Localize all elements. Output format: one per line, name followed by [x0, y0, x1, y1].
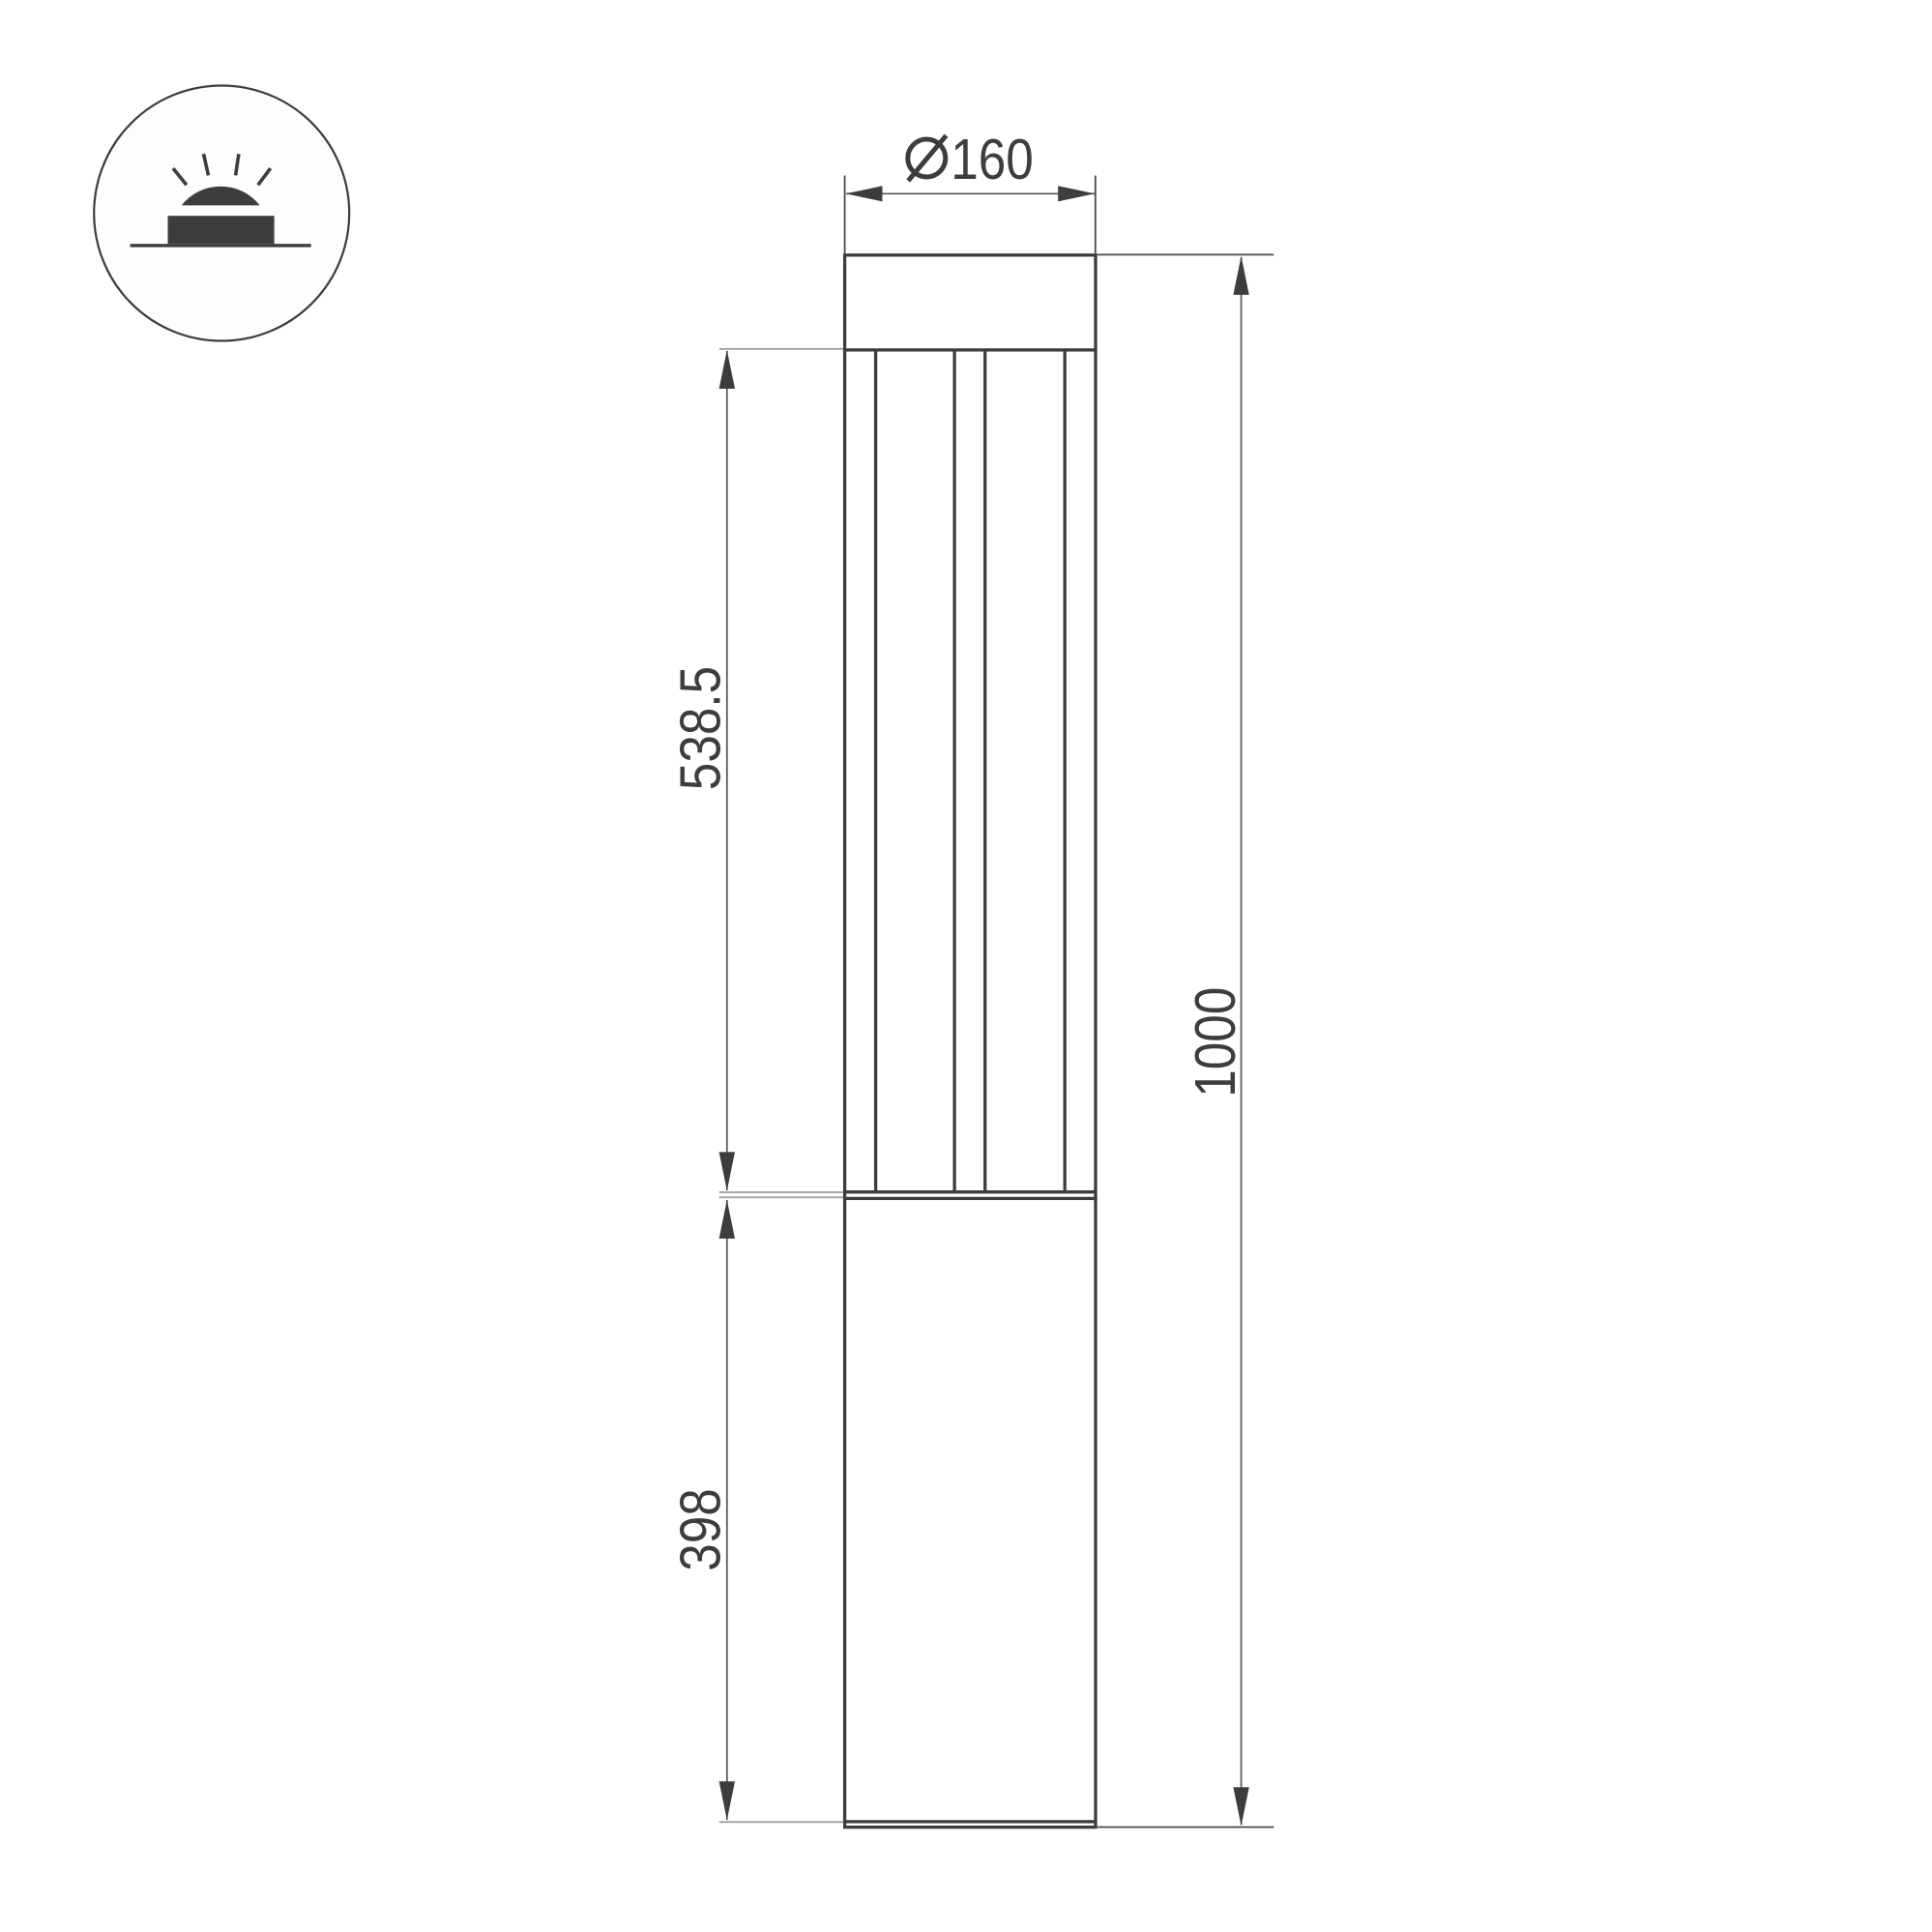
svg-text:538.5: 538.5 [668, 666, 732, 790]
svg-text:398: 398 [668, 1488, 732, 1571]
svg-text:160: 160 [951, 128, 1034, 191]
svg-text:1000: 1000 [1184, 987, 1247, 1098]
